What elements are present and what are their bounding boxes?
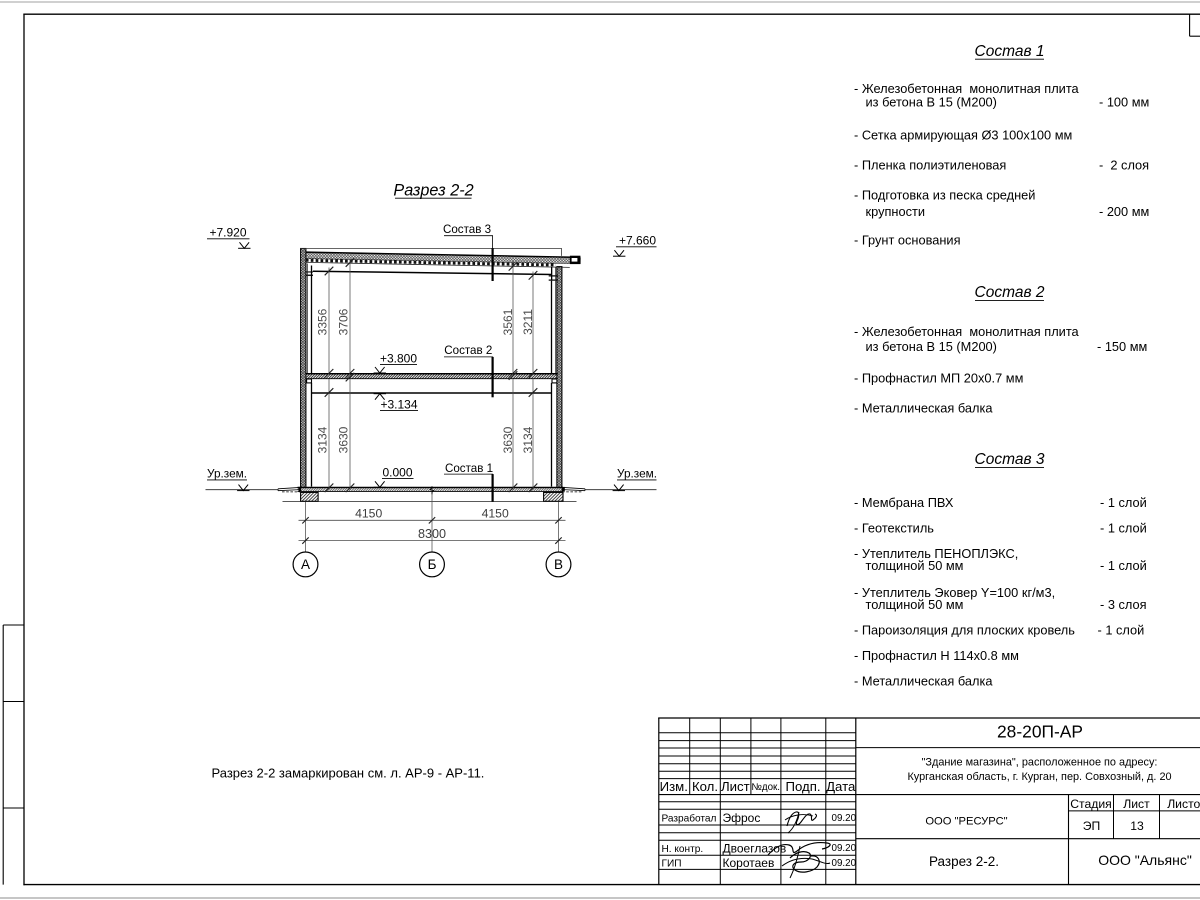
svg-text:3630: 3630 [501, 426, 515, 453]
svg-text:3134: 3134 [315, 426, 329, 453]
svg-text:Коротаев: Коротаев [723, 856, 775, 870]
svg-text:Курганская область, г. Курган,: Курганская область, г. Курган, пер. Совх… [907, 771, 1171, 783]
svg-text:09.20: 09.20 [832, 858, 857, 869]
svg-text:"Здание магазина", расположенн: "Здание магазина", расположенное по адре… [922, 756, 1158, 768]
svg-text:4150: 4150 [355, 507, 382, 521]
svg-text:Разрез 2-2 замаркирован см. л.: Разрез 2-2 замаркирован см. л. АР-9 - АР… [212, 766, 485, 781]
svg-text:09.20: 09.20 [832, 813, 857, 824]
svg-text:- Геотекстиль: - Геотекстиль [854, 521, 934, 536]
svg-text:+3.134: +3.134 [380, 397, 417, 411]
svg-text:09.20: 09.20 [832, 843, 857, 854]
svg-text:Разработал: Разработал [662, 813, 717, 825]
svg-text:- 1 слой: - 1 слой [1100, 558, 1147, 573]
svg-text:- Профнастил МП 20х0.7 мм: - Профнастил МП 20х0.7 мм [854, 371, 1023, 386]
svg-text:13: 13 [1130, 819, 1144, 833]
svg-text:Подп.: Подп. [785, 779, 820, 794]
svg-text:Лист: Лист [721, 779, 750, 794]
svg-text:ЭП: ЭП [1083, 819, 1101, 833]
svg-text:Состав 2: Состав 2 [444, 344, 492, 357]
svg-text:Разрез 2-2: Разрез 2-2 [393, 181, 473, 199]
svg-text:ГИП: ГИП [662, 859, 682, 870]
svg-text:3356: 3356 [315, 308, 329, 335]
svg-text:4150: 4150 [482, 507, 509, 521]
svg-text:Эфрос: Эфрос [723, 811, 761, 825]
svg-text:Ур.зем.: Ур.зем. [207, 467, 247, 481]
svg-text:- 1 слой: - 1 слой [1100, 495, 1147, 510]
svg-text:- 150 мм: - 150 мм [1097, 339, 1147, 354]
svg-text:3706: 3706 [337, 308, 351, 335]
svg-text:- 3 слоя: - 3 слоя [1100, 597, 1147, 612]
svg-text:из бетона В 15 (М200): из бетона В 15 (М200) [866, 95, 997, 110]
svg-text:0.000: 0.000 [382, 466, 412, 480]
svg-text:Кол.: Кол. [692, 779, 718, 794]
svg-text:- Пленка полиэтиленовая: - Пленка полиэтиленовая [854, 158, 1006, 173]
svg-text:+7.660: +7.660 [619, 234, 656, 248]
svg-text:- Металлическая балка: - Металлическая балка [854, 674, 993, 689]
svg-text:- Профнастил Н 114х0.8 мм: - Профнастил Н 114х0.8 мм [854, 648, 1019, 663]
svg-text:- Пароизоляция для плоских кро: - Пароизоляция для плоских кровель [854, 623, 1075, 638]
svg-text:- Сетка армирующая Ø3 100х100: - Сетка армирующая Ø3 100х100 мм [854, 128, 1072, 143]
svg-text:- Подготовка из песка средней: - Подготовка из песка средней [854, 188, 1035, 203]
svg-text:Лист: Лист [1123, 797, 1150, 811]
svg-text:- 200 мм: - 200 мм [1099, 204, 1149, 219]
svg-text:крупности: крупности [866, 204, 926, 219]
svg-text:Разрез 2-2.: Разрез 2-2. [929, 854, 999, 869]
svg-text:Б: Б [428, 557, 437, 572]
svg-text:Состав 1: Состав 1 [975, 43, 1045, 60]
svg-text:Состав 1: Состав 1 [445, 462, 493, 475]
svg-text:Изм.: Изм. [660, 779, 688, 794]
svg-text:Состав 2: Состав 2 [975, 284, 1045, 301]
svg-text:Н. контр.: Н. контр. [662, 844, 704, 855]
svg-text:Двоеглазов: Двоеглазов [723, 841, 787, 855]
svg-text:- 100 мм: - 100 мм [1099, 95, 1149, 110]
svg-text:толщиной 50 мм: толщиной 50 мм [866, 558, 964, 573]
svg-text:+7.920: +7.920 [209, 226, 246, 240]
svg-text:8300: 8300 [418, 527, 446, 541]
svg-text:Стадия: Стадия [1070, 797, 1112, 811]
svg-text:3211: 3211 [521, 309, 535, 335]
svg-text:- 1 слой: - 1 слой [1098, 623, 1145, 638]
svg-text:- Железобетонная монолитная п: - Железобетонная монолитная плита [854, 324, 1080, 339]
svg-text:Ур.зем.: Ур.зем. [617, 467, 657, 481]
svg-text:28-20П-АР: 28-20П-АР [997, 722, 1083, 742]
svg-text:3134: 3134 [521, 426, 535, 453]
svg-text:Дата: Дата [826, 779, 856, 794]
svg-text:3630: 3630 [337, 426, 351, 453]
svg-text:+3.800: +3.800 [380, 351, 417, 365]
svg-text:№док.: №док. [751, 782, 780, 793]
svg-text:Состав 3: Состав 3 [443, 223, 491, 236]
svg-text:ООО "Альянс": ООО "Альянс" [1098, 852, 1192, 868]
svg-text:Состав 3: Состав 3 [975, 451, 1045, 468]
svg-text:- 1 слой: - 1 слой [1100, 521, 1147, 536]
svg-text:3561: 3561 [501, 308, 515, 335]
svg-text:Листов: Листов [1167, 797, 1200, 811]
svg-text:толщиной 50 мм: толщиной 50 мм [866, 597, 964, 612]
svg-text:ООО "РЕСУРС": ООО "РЕСУРС" [925, 815, 1007, 827]
svg-text:- Мембрана ПВХ: - Мембрана ПВХ [854, 495, 954, 510]
svg-text:- 2 слоя: - 2 слоя [1099, 158, 1149, 173]
svg-text:- Грунт основания: - Грунт основания [854, 233, 961, 248]
svg-text:А: А [301, 557, 310, 572]
svg-text:- Металлическая балка: - Металлическая балка [854, 401, 993, 416]
svg-text:В: В [554, 557, 563, 572]
svg-text:из бетона В 15 (М200): из бетона В 15 (М200) [866, 339, 997, 354]
